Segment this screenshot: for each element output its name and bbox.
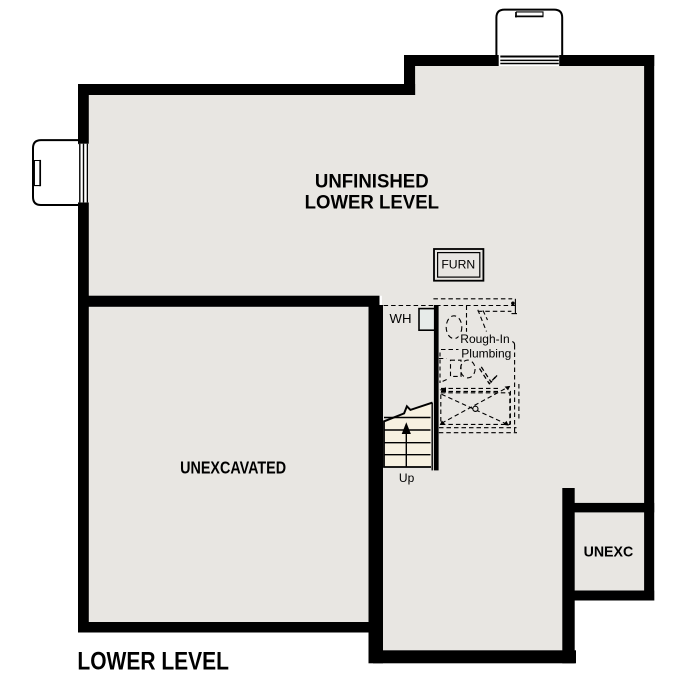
svg-text:UNEXC: UNEXC — [584, 544, 634, 560]
svg-text:UNFINISHED: UNFINISHED — [315, 171, 429, 192]
svg-text:FURN: FURN — [441, 257, 475, 271]
svg-text:Up: Up — [399, 471, 415, 485]
svg-text:LOWER LEVEL: LOWER LEVEL — [77, 647, 229, 675]
svg-text:Plumbing: Plumbing — [461, 347, 511, 361]
svg-text:UNEXCAVATED: UNEXCAVATED — [180, 458, 286, 478]
svg-text:WH: WH — [390, 311, 412, 326]
svg-text:LOWER LEVEL: LOWER LEVEL — [305, 192, 440, 213]
svg-text:Rough-In: Rough-In — [460, 332, 509, 346]
